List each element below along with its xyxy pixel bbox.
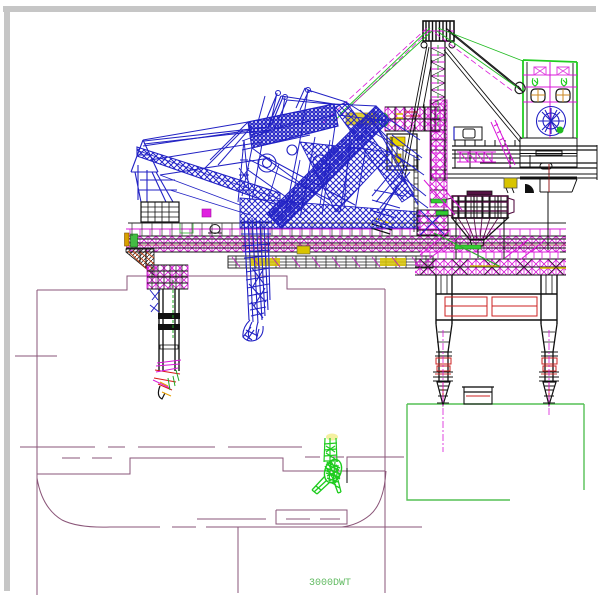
svg-text:3000DWT: 3000DWT [309,578,351,589]
